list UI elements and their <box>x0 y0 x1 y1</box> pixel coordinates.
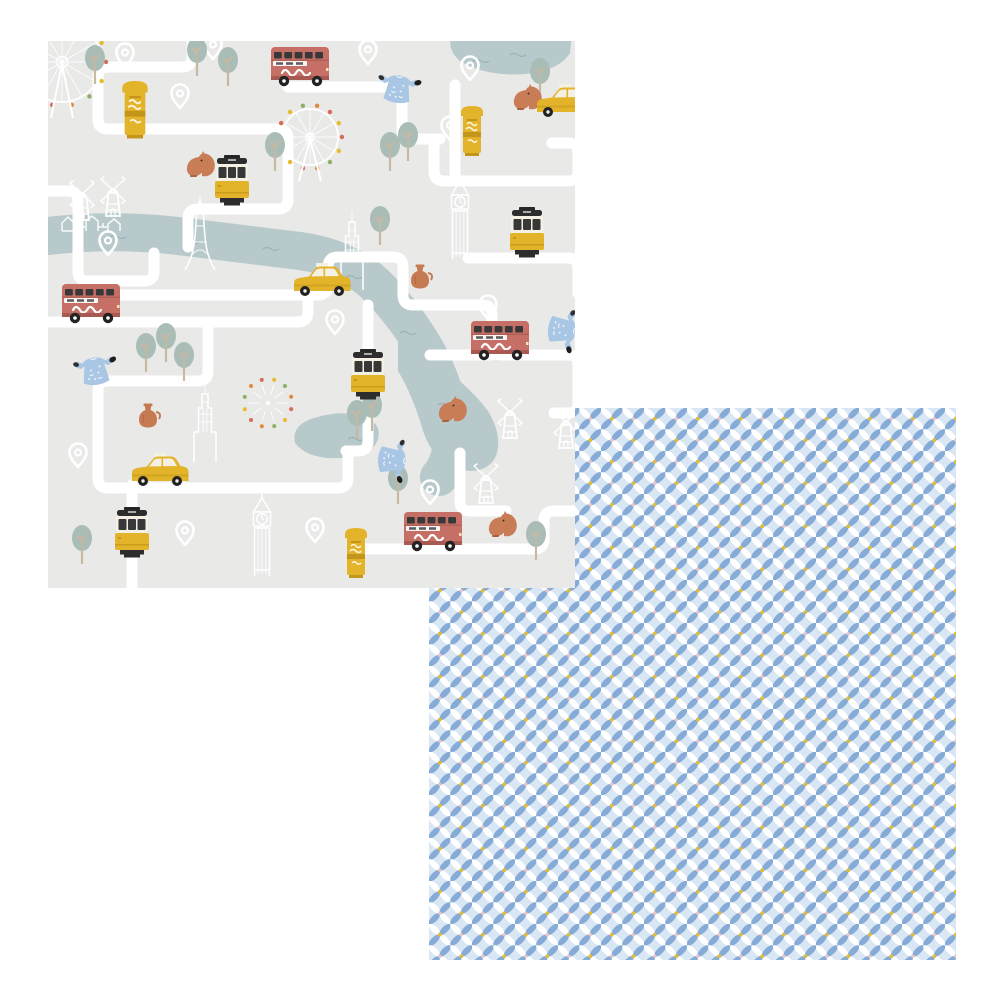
london-map-paper-sheet <box>48 41 575 588</box>
postbox-icon <box>345 528 367 578</box>
tram-icon <box>215 155 249 206</box>
postbox-icon <box>122 81 147 139</box>
postbox-icon <box>461 106 483 156</box>
tram-icon <box>510 207 544 258</box>
tram-icon <box>115 507 149 558</box>
map-illustration <box>48 41 575 588</box>
tram-icon <box>351 349 385 400</box>
